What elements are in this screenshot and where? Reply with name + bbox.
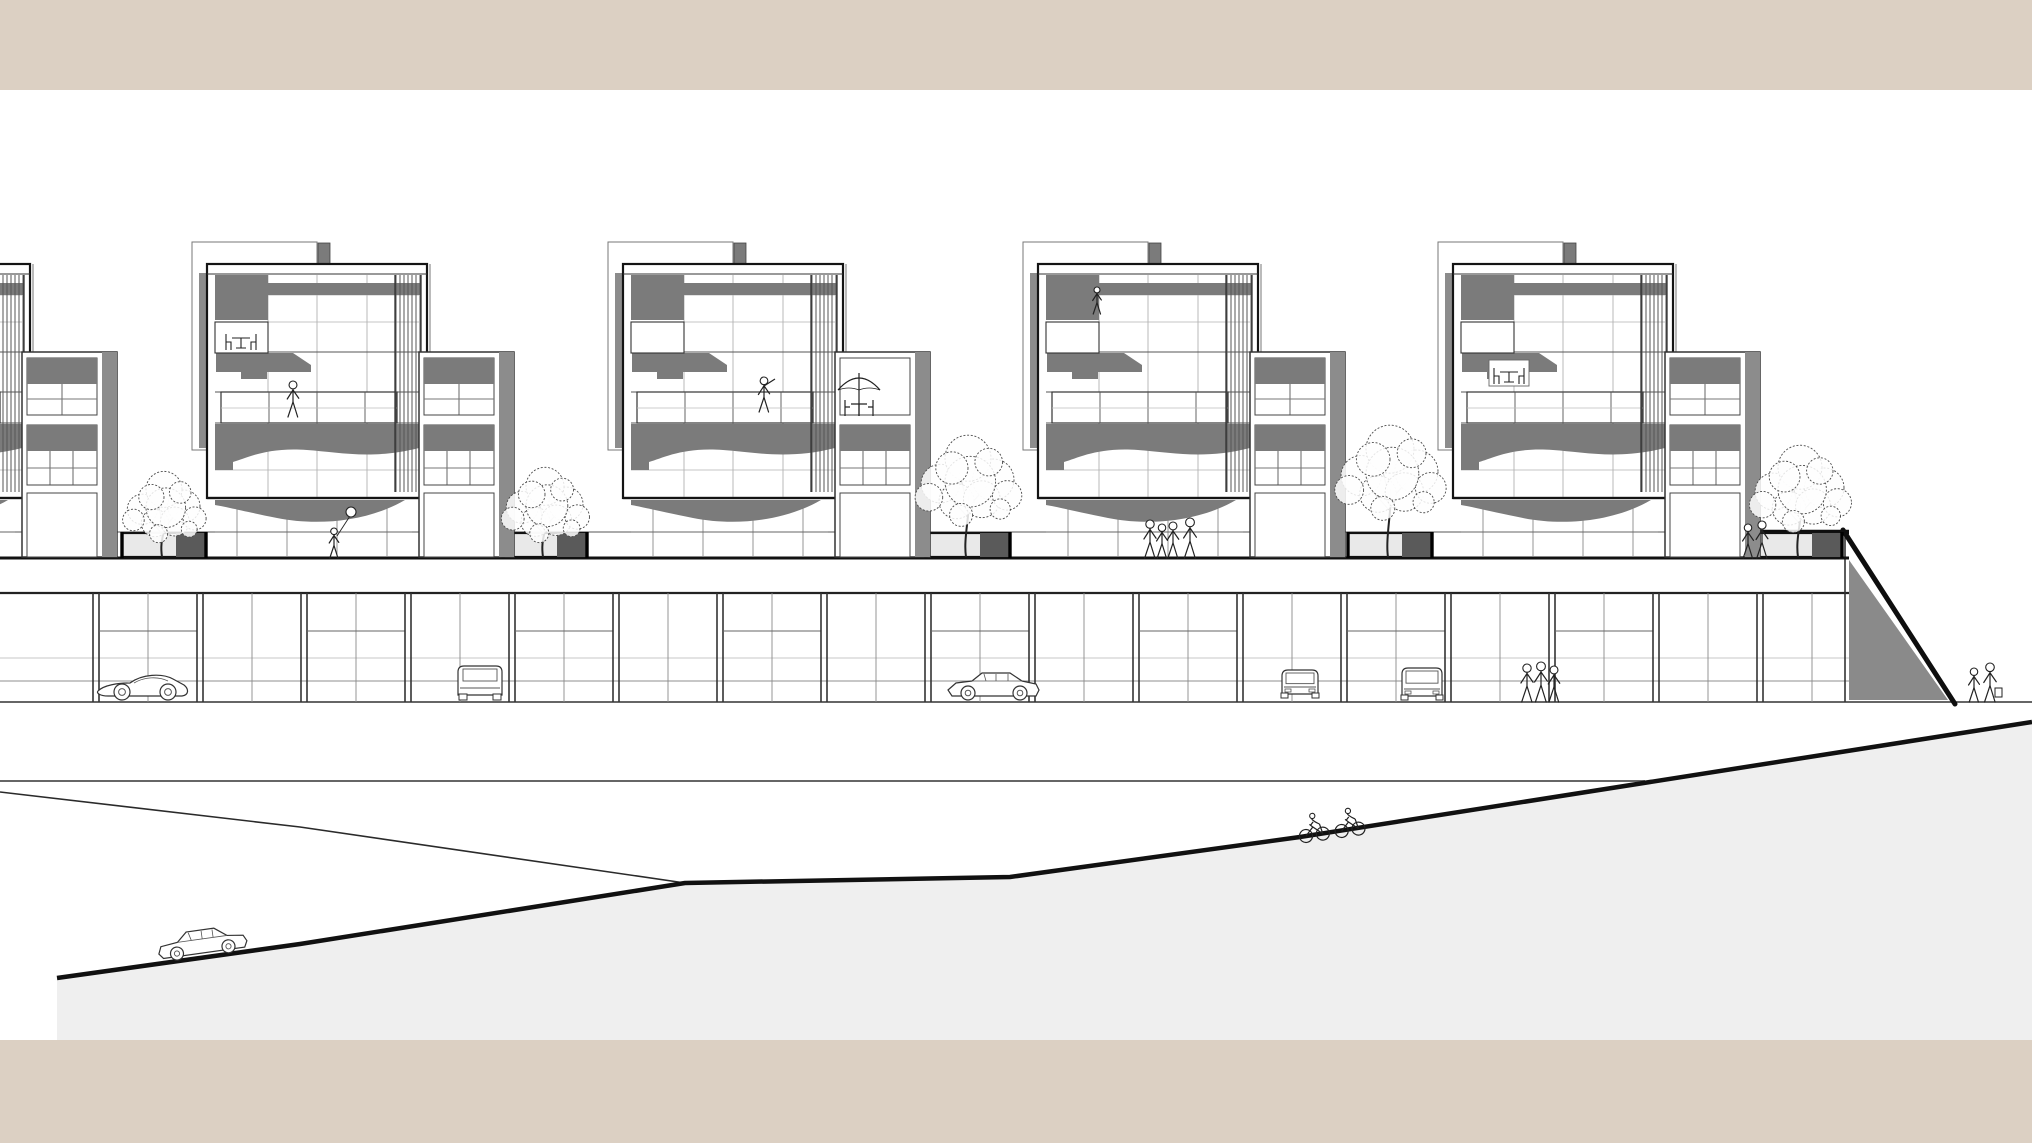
wing-pier xyxy=(1330,352,1345,557)
tree-foliage xyxy=(1782,510,1804,532)
tree-foliage xyxy=(950,503,973,526)
car-compact-front xyxy=(1281,670,1319,698)
tree-foliage xyxy=(936,452,968,484)
tree-foliage xyxy=(1397,439,1426,468)
tree-foliage xyxy=(501,507,524,530)
tree-foliage xyxy=(1807,458,1833,484)
mid-window-band xyxy=(637,392,813,423)
car-suv-rear xyxy=(458,666,502,700)
tree-foliage xyxy=(990,499,1010,519)
tree-foliage xyxy=(518,481,545,508)
tree-foliage xyxy=(169,482,191,504)
corner-block xyxy=(1046,275,1099,320)
mid-window-band xyxy=(1467,392,1643,423)
tree-foliage xyxy=(1769,461,1800,492)
top-border-band xyxy=(0,0,2032,90)
tree-foliage xyxy=(1413,492,1434,513)
tree-foliage xyxy=(530,524,549,543)
tree-foliage xyxy=(1749,491,1775,517)
top-balcony-band xyxy=(684,283,837,295)
corner-block xyxy=(631,275,684,320)
tree-foliage xyxy=(1371,496,1395,520)
side-wing xyxy=(1250,352,1345,557)
drawing-root xyxy=(0,0,2032,1143)
wing-pier xyxy=(915,352,930,557)
chimney xyxy=(318,243,330,266)
corner-block xyxy=(1461,275,1514,320)
wing-terrace xyxy=(1255,493,1325,557)
tree-foliage xyxy=(1335,476,1364,505)
elevation-svg xyxy=(0,0,2032,1143)
top-balcony-band xyxy=(1099,283,1252,295)
top-balcony-band xyxy=(268,283,421,295)
tree-foliage xyxy=(563,520,580,537)
side-wing xyxy=(419,352,514,557)
tree-foliage xyxy=(915,483,943,511)
upper-window-box xyxy=(631,322,684,353)
side-wing xyxy=(22,352,117,557)
top-balcony-band xyxy=(1514,283,1667,295)
tree-foliage xyxy=(1821,506,1840,525)
tree-foliage xyxy=(150,525,168,543)
wing-terrace xyxy=(27,493,97,557)
planter-box xyxy=(926,532,1010,558)
side-wing xyxy=(835,352,930,557)
tree-foliage xyxy=(123,509,145,531)
wing-pier xyxy=(102,352,117,557)
planter-box xyxy=(1758,532,1842,558)
elevation-canvas xyxy=(0,0,2032,1143)
corner-block xyxy=(215,275,268,320)
tree-foliage xyxy=(139,484,164,509)
mid-window-band xyxy=(1052,392,1228,423)
tree-foliage xyxy=(181,521,197,537)
planter-box xyxy=(1348,532,1432,558)
balloon xyxy=(346,507,356,517)
wing-terrace xyxy=(1670,493,1740,557)
mid-window-band xyxy=(221,392,397,423)
chimney xyxy=(1149,243,1161,266)
top-balcony-band xyxy=(0,283,24,295)
chimney xyxy=(734,243,746,266)
tree-foliage xyxy=(1356,443,1390,477)
bottom-border-band xyxy=(0,1040,2032,1143)
wing-terrace xyxy=(424,493,494,557)
upper-window-box xyxy=(1046,322,1099,353)
tree-foliage xyxy=(551,478,574,501)
car-suv-front xyxy=(1401,668,1443,700)
upper-window-box xyxy=(1461,322,1514,353)
tree-foliage xyxy=(975,448,1003,476)
wing-terrace xyxy=(840,493,910,557)
chimney xyxy=(1564,243,1576,266)
